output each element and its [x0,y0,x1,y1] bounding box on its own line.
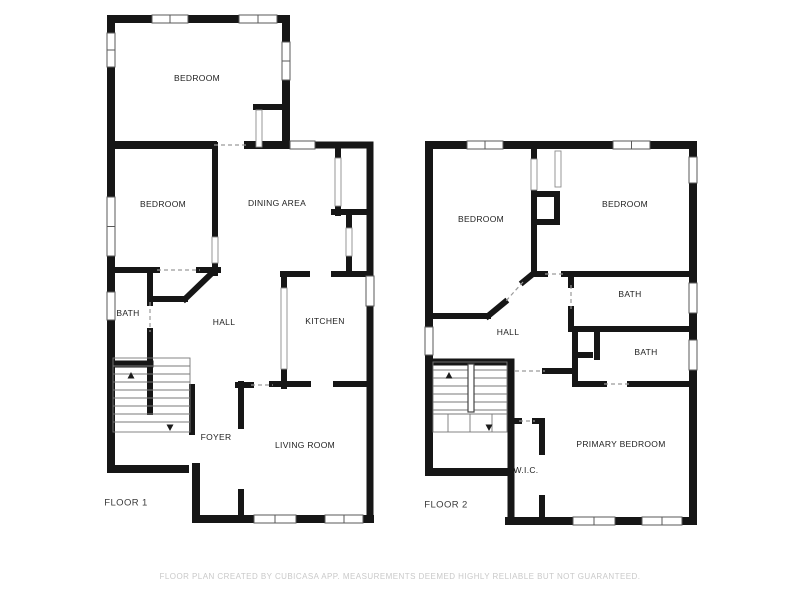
room-label-living-room: LIVING ROOM [275,440,335,450]
window [425,327,433,355]
window [689,340,697,370]
door-opening [505,282,523,302]
floorplan-image: BEDROOMBEDROOMDINING AREABATHHALLKITCHEN… [0,0,800,600]
room-label-bedroom: BEDROOM [174,73,220,83]
wall-opening [212,237,218,263]
wall-opening [531,159,537,190]
window [366,276,374,306]
room-label-bath: BATH [634,347,657,357]
stair-up-arrow-icon [446,372,453,379]
room-label-bedroom: BEDROOM [602,199,648,209]
wall-opening [281,288,287,369]
stair-down-arrow-icon [486,425,493,432]
window [689,283,697,313]
floor-1-label: FLOOR 1 [104,498,147,509]
room-label-hall: HALL [497,327,519,337]
window [290,141,315,149]
disclaimer-text: FLOOR PLAN CREATED BY CUBICASA APP. MEAS… [0,572,800,581]
window [689,157,697,183]
room-label-bath: BATH [116,308,139,318]
room-label-bedroom: BEDROOM [140,199,186,209]
floor-2-label: FLOOR 2 [424,500,467,511]
room-label-hall: HALL [213,317,235,327]
wall-opening [335,158,341,206]
stair-divider [468,364,474,412]
room-label-bedroom: BEDROOM [458,214,504,224]
wall-opening [346,228,352,256]
stair-up-arrow-icon [128,372,135,379]
stair-down-arrow-icon [167,425,174,432]
window [107,292,115,320]
wall-opening [555,151,561,187]
room-label-primary-bedroom: PRIMARY BEDROOM [576,439,665,449]
room-label-w-i-c: W.I.C. [514,465,539,475]
wall-opening [256,110,262,147]
room-label-kitchen: KITCHEN [305,316,344,326]
room-label-foyer: FOYER [201,432,232,442]
room-label-bath: BATH [618,289,641,299]
wall [185,273,212,299]
room-label-dining-area: DINING AREA [248,198,306,208]
floorplan-svg [0,0,800,600]
